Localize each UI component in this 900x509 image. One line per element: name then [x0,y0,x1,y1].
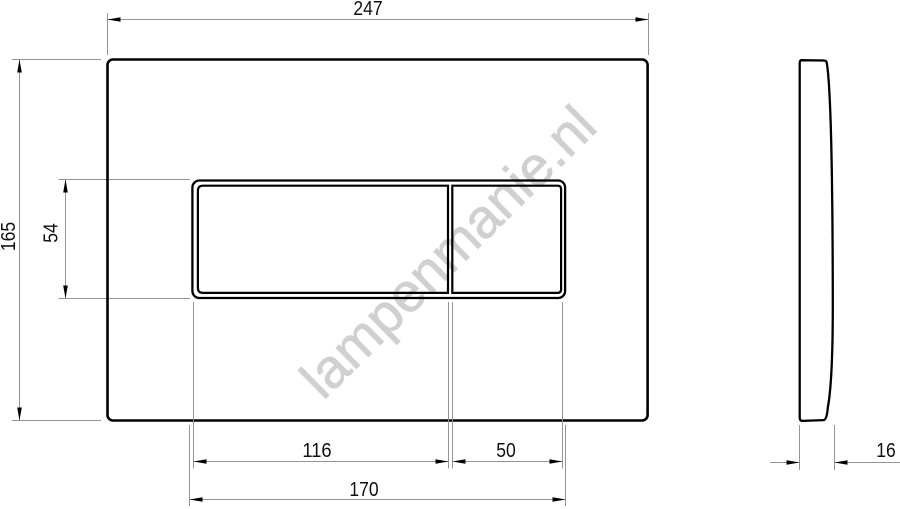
svg-text:170: 170 [349,479,378,501]
svg-text:116: 116 [302,440,331,462]
svg-text:54: 54 [41,223,63,243]
svg-text:16: 16 [876,440,896,462]
svg-text:247: 247 [353,0,382,20]
svg-text:165: 165 [0,222,20,251]
svg-text:50: 50 [496,440,516,462]
